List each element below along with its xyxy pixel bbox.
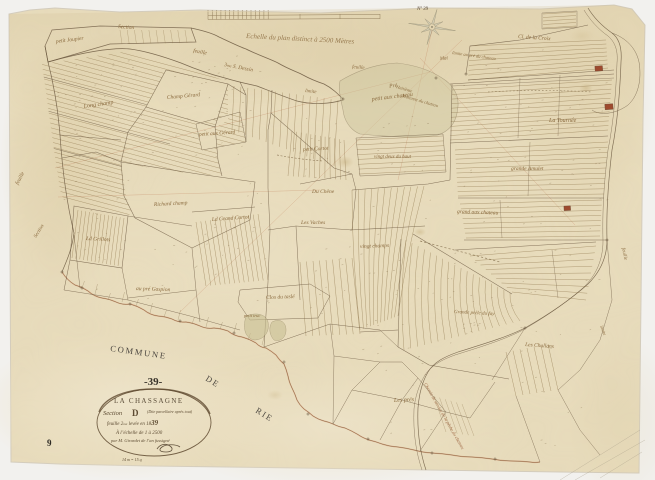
- svg-text:par M. Girardet de l’an fussig: par M. Girardet de l’an fussigné: [110, 438, 171, 443]
- svg-text:LA CHASSAGNE: LA CHASSAGNE: [114, 397, 184, 405]
- svg-text:(Dite parcellaire après tout): (Dite parcellaire après tout): [147, 409, 193, 414]
- svg-text:La Tournée: La Tournée: [548, 118, 577, 124]
- svg-text:Les Vaches: Les Vaches: [300, 220, 325, 226]
- svg-text:Section: Section: [103, 410, 122, 417]
- svg-text:vingt deux du haut: vingt deux du haut: [374, 155, 412, 160]
- svg-text:petit truc: petit truc: [243, 313, 260, 318]
- svg-text:D: D: [132, 408, 139, 418]
- svg-text:Clos du taslé: Clos du taslé: [266, 294, 295, 301]
- svg-text:Mat: Mat: [439, 56, 449, 62]
- svg-text:grande Amulet: grande Amulet: [511, 166, 544, 172]
- svg-text:vingt champs: vingt champs: [360, 243, 389, 250]
- svg-text:Les prés: Les prés: [393, 397, 415, 404]
- svg-text:9: 9: [47, 438, 52, 448]
- svg-text:au pré Gaspion: au pré Gaspion: [136, 286, 171, 293]
- svg-text:Section: Section: [118, 24, 135, 31]
- svg-text:Du Chêne: Du Chêne: [311, 189, 335, 195]
- svg-text:Nº 39: Nº 39: [416, 6, 429, 12]
- svg-text:À l’échelle de 1 à 2500: À l’échelle de 1 à 2500: [115, 430, 163, 436]
- svg-text:-39-: -39-: [144, 376, 163, 388]
- svg-text:14 m = 15 q: 14 m = 15 q: [122, 457, 142, 462]
